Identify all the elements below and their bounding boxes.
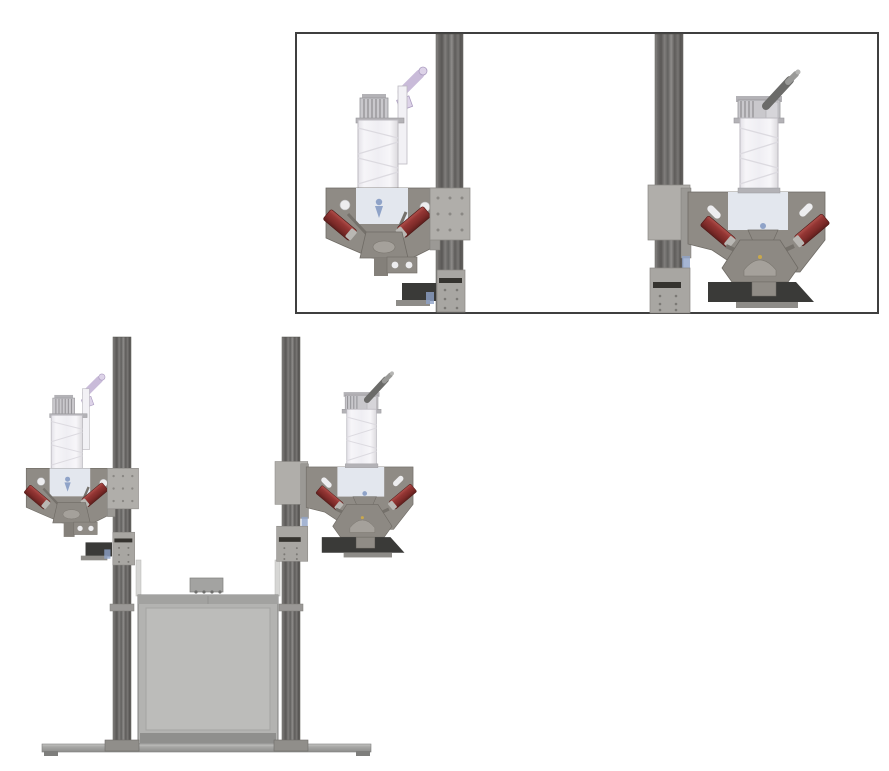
base-foot-right	[356, 751, 370, 756]
right-column-foot	[274, 740, 308, 751]
chamber-top-bracket	[190, 578, 223, 592]
corner-post-left	[136, 560, 141, 596]
base-plate	[42, 744, 371, 752]
left-column-collar	[110, 604, 134, 611]
build-chamber-panel	[146, 608, 270, 730]
right-column-collar	[279, 604, 303, 611]
corner-post-right	[275, 560, 280, 596]
build-chamber-bottom-band	[140, 733, 276, 743]
left-column-foot	[105, 740, 139, 751]
figure-canvas	[0, 0, 889, 771]
printhead-detail-inset	[296, 33, 878, 313]
main-machine-view	[24, 337, 417, 756]
base-foot-left	[44, 751, 58, 756]
cad-figure	[0, 0, 889, 771]
